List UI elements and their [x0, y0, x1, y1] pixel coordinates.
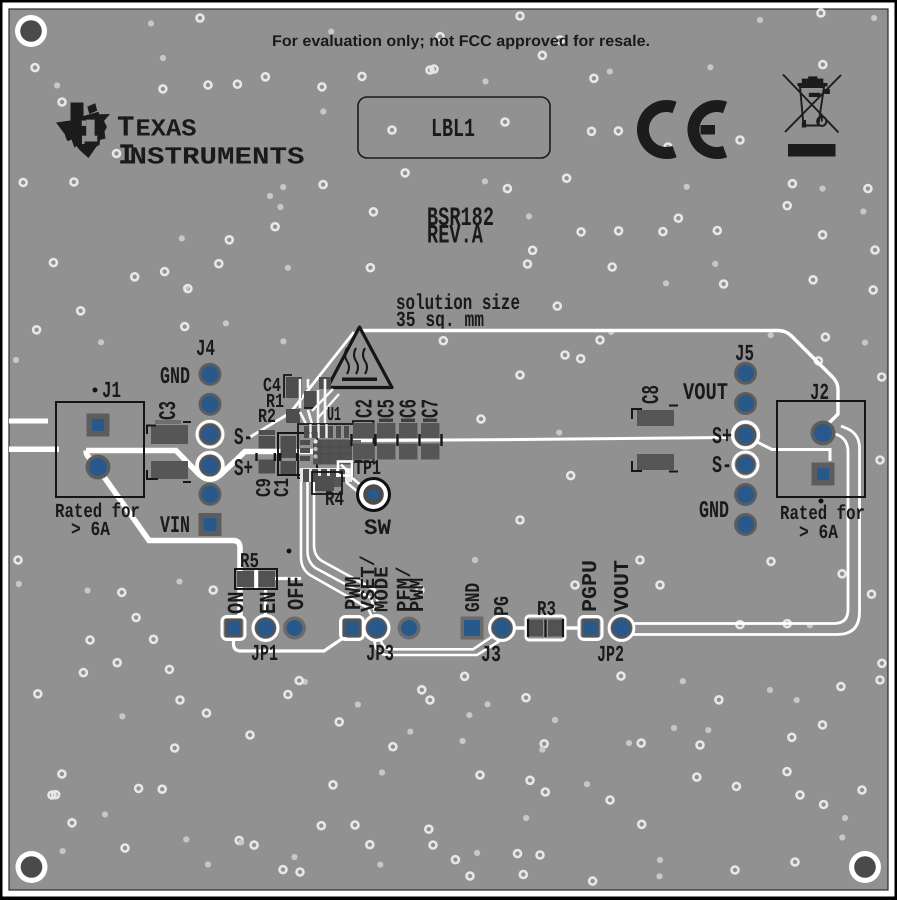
svg-text:GND: GND [160, 364, 190, 391]
svg-text:J2: J2 [810, 380, 829, 406]
svg-text:S-: S- [234, 425, 253, 452]
svg-text:PWM: PWM [407, 578, 430, 612]
svg-text:PGPU: PGPU [580, 560, 603, 612]
svg-text:C7: C7 [419, 399, 446, 418]
svg-text:OFF: OFF [284, 576, 310, 610]
svg-text:REV.A: REV.A [427, 221, 483, 251]
svg-text:J4: J4 [196, 336, 215, 362]
svg-text:VOUT: VOUT [683, 380, 728, 407]
svg-text:For evaluation only; not FCC a: For evaluation only; not FCC approved fo… [272, 33, 650, 50]
svg-text:EN: EN [256, 592, 282, 614]
svg-text:VOUT: VOUT [612, 560, 635, 612]
svg-text:C3: C3 [156, 401, 183, 420]
svg-text:R5: R5 [240, 551, 259, 574]
svg-text:SW: SW [364, 516, 392, 541]
svg-text:S+: S+ [712, 424, 732, 451]
svg-text:EXAS: EXAS [136, 117, 197, 144]
svg-text:TP1: TP1 [354, 458, 381, 481]
svg-text:S-: S- [712, 453, 732, 480]
svg-text:C8: C8 [639, 385, 666, 404]
svg-text:NSTRUMENTS: NSTRUMENTS [130, 145, 305, 172]
svg-text:GND: GND [463, 583, 486, 612]
svg-text:C1: C1 [272, 478, 295, 497]
svg-text:> 6A: > 6A [799, 522, 838, 545]
svg-text:JP2: JP2 [597, 642, 624, 668]
svg-text:R4: R4 [325, 489, 344, 512]
svg-text:R2: R2 [258, 406, 276, 429]
svg-text:> 6A: > 6A [71, 519, 110, 542]
svg-text:VIN: VIN [160, 513, 190, 540]
svg-text:PG: PG [492, 596, 515, 616]
svg-text:LBL1: LBL1 [431, 114, 475, 144]
svg-text:S+: S+ [234, 456, 253, 483]
svg-text:R3: R3 [537, 599, 556, 622]
svg-text:JP3: JP3 [366, 641, 394, 667]
svg-text:J1: J1 [102, 378, 121, 404]
svg-text:ON: ON [224, 592, 250, 614]
svg-text:J3: J3 [481, 642, 501, 668]
svg-text:GND: GND [699, 498, 729, 525]
svg-text:JP1: JP1 [251, 641, 278, 667]
svg-text:U1: U1 [327, 404, 341, 427]
svg-text:MODE: MODE [372, 566, 395, 612]
